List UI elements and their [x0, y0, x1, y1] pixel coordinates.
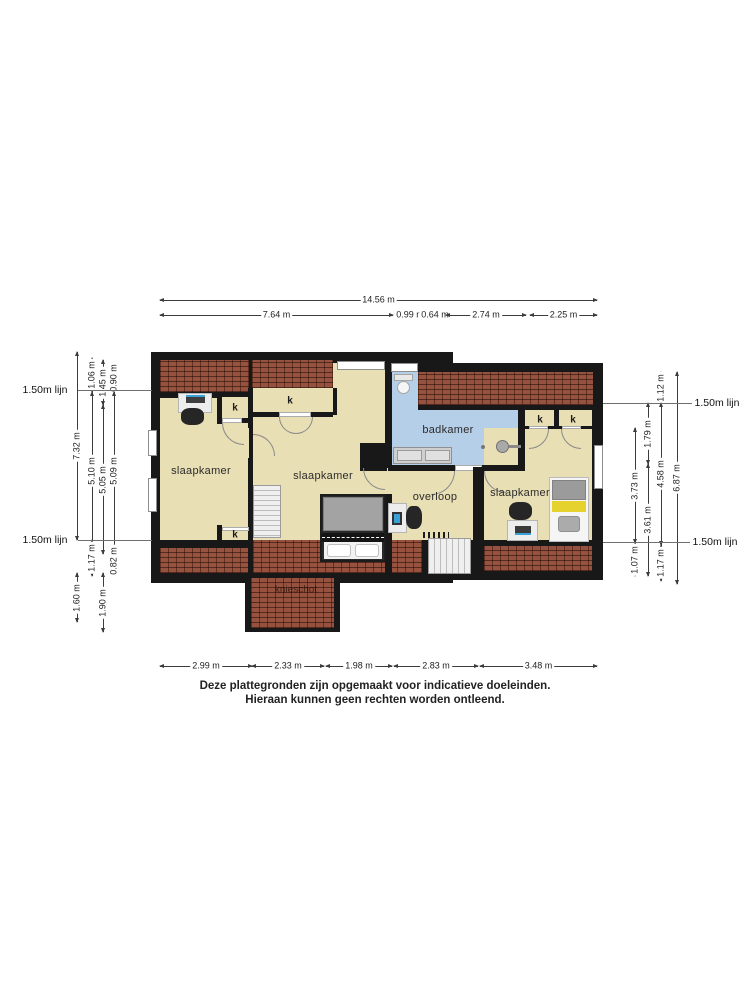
- dimension-line: [648, 403, 649, 464]
- toilet-icon: [394, 374, 413, 395]
- dimension-line: [426, 315, 444, 316]
- desk-icon: [388, 503, 407, 533]
- dimension-label: 1.45 m: [98, 367, 109, 399]
- dimension-line: [160, 315, 393, 316]
- dimension-label: 2.25 m: [548, 310, 580, 321]
- dimension-label: 7.64 m: [261, 310, 293, 321]
- wall-block-bathroom-corner: [360, 443, 387, 471]
- dimension-line: [252, 666, 324, 667]
- dimension-label: 6.87 m: [672, 462, 683, 494]
- dimension-label: 5.10 m: [87, 455, 98, 487]
- window-bathroom: [391, 363, 418, 372]
- dimension-line: [92, 540, 93, 576]
- dimension-line: [114, 364, 115, 392]
- dimension-line: [326, 666, 392, 667]
- dimension-label: 1.17 m: [656, 547, 667, 579]
- closet-middle-floor: [253, 388, 333, 415]
- dimension-label: 14.56 m: [360, 295, 397, 306]
- dimension-label: 5.05 m: [98, 464, 109, 496]
- stair-railing-icon: [423, 532, 449, 538]
- roof-hatch-bottom-right: [484, 546, 592, 571]
- dimension-label: 2.74 m: [470, 310, 502, 321]
- kneewall-bottom-left: [160, 540, 221, 548]
- roof-hatch-top-right: [418, 372, 593, 405]
- stairs-well-icon: [253, 485, 281, 538]
- floorplan-page: { "rooms": { "bedroom_left": "slaapkamer…: [0, 0, 750, 1000]
- dimension-label: 1.07 m: [630, 544, 641, 576]
- double-sink-icon: [393, 447, 452, 464]
- wall-bathroom-right: [518, 405, 525, 467]
- height-line-150cm: [78, 390, 152, 391]
- window-left-1: [148, 430, 157, 456]
- dimension-line: [160, 666, 252, 667]
- dimension-label: 0.99 m: [394, 310, 426, 321]
- dimension-line: [661, 403, 662, 545]
- dimension-line: [635, 428, 636, 543]
- dimension-line: [77, 573, 78, 622]
- dimension-label: 3.61 m: [643, 504, 654, 536]
- dimension-line: [648, 464, 649, 576]
- height-line-150cm-label: 1.50m lijn: [691, 536, 740, 548]
- dimension-label: 7.32 m: [72, 430, 83, 462]
- desk-icon: [507, 520, 538, 541]
- dimension-label: 0.64 m: [419, 310, 451, 321]
- dimension-line: [661, 372, 662, 403]
- dimension-label: 0.82 m: [109, 545, 120, 577]
- dimension-line: [103, 360, 104, 405]
- window-left-2: [148, 478, 157, 512]
- dimension-line: [394, 666, 478, 667]
- door-opening-landing-bedroom: [385, 468, 392, 494]
- closet-middle-right-wall: [333, 388, 337, 415]
- disclaimer-line-1: Deze plattegronden zijn opgemaakt voor i…: [0, 679, 750, 693]
- dimension-label: 1.17 m: [87, 542, 98, 574]
- dimension-line: [677, 372, 678, 584]
- stairs-icon: [428, 538, 471, 574]
- dimension-line: [92, 392, 93, 549]
- room-label-bathroom: badkamer: [422, 424, 473, 436]
- room-label-bedroom-left: slaapkamer: [171, 465, 231, 477]
- shower-arm-icon: [509, 445, 521, 448]
- chair-icon: [406, 506, 422, 529]
- closet-middle-bottom-wall-b: [311, 412, 333, 417]
- height-line-150cm-label: 1.50m lijn: [693, 397, 742, 409]
- dimension-line: [114, 392, 115, 549]
- dimension-label: 0.90 m: [109, 362, 120, 394]
- closet-middle-bottom-wall-a: [253, 412, 279, 417]
- closet-shelf: [222, 527, 249, 531]
- room-label-bedroom-middle: slaapkamer: [293, 470, 353, 482]
- dimension-label: 3.73 m: [630, 470, 641, 502]
- dimension-label: 2.33 m: [272, 661, 304, 672]
- shower-head-icon: [496, 440, 509, 453]
- height-line-150cm: [78, 540, 152, 541]
- dimension-line: [160, 300, 597, 301]
- kneewall-bathroom-top: [418, 405, 525, 410]
- dimension-line: [635, 543, 636, 576]
- dimension-line: [480, 666, 597, 667]
- dimension-label: 2.99 m: [190, 661, 222, 672]
- height-line-150cm-label: 1.50m lijn: [21, 534, 70, 546]
- height-line-150cm: [603, 403, 692, 404]
- dimension-line: [530, 315, 597, 316]
- dimension-line: [661, 545, 662, 581]
- dimension-label: 1.12 m: [656, 372, 667, 404]
- height-line-150cm-label: 1.50m lijn: [21, 384, 70, 396]
- dimension-line: [77, 352, 78, 540]
- roof-hatch-bottom-left: [160, 548, 249, 573]
- window-right: [594, 445, 603, 489]
- disclaimer-line-2: Hieraan kunnen geen rechten worden ontle…: [0, 693, 750, 707]
- dimension-label: 1.90 m: [98, 587, 109, 619]
- room-label-bedroom-right: slaapkamer: [490, 487, 550, 499]
- dimension-label: 3.48 m: [523, 661, 555, 672]
- dimension-label: 1.60 m: [72, 582, 83, 614]
- room-label-kneewall: knieschot: [275, 585, 317, 596]
- chair-icon: [181, 408, 204, 425]
- dimension-line: [446, 315, 526, 316]
- dimension-label: 1.79 m: [643, 418, 654, 450]
- dimension-label: 1.98 m: [343, 661, 375, 672]
- dimension-label: 2.83 m: [420, 661, 452, 672]
- roof-hatch-top-middle: [252, 360, 333, 388]
- shower-drain-icon: [481, 445, 485, 449]
- dimension-label: 5.09 m: [109, 455, 120, 487]
- window-top-middle: [337, 361, 385, 370]
- dimension-line: [396, 315, 424, 316]
- roof-hatch-top-left: [160, 360, 249, 392]
- dimension-line: [103, 573, 104, 632]
- wall-left-middle-divider-upper: [248, 388, 253, 428]
- dimension-line: [114, 548, 115, 574]
- dimension-line: [103, 405, 104, 554]
- room-label-landing: overloop: [413, 491, 458, 503]
- single-bed-icon: [549, 477, 589, 542]
- dimension-line: [92, 358, 93, 392]
- dimension-label: 1.06 m: [87, 359, 98, 391]
- wall-landing-bedroom-right: [473, 467, 484, 545]
- chair-icon: [509, 502, 532, 520]
- double-bed-icon: [320, 494, 386, 562]
- dimension-label: 4.58 m: [656, 458, 667, 490]
- room-bedroom-middle-upper-floor: [333, 363, 385, 415]
- height-line-150cm: [603, 542, 690, 543]
